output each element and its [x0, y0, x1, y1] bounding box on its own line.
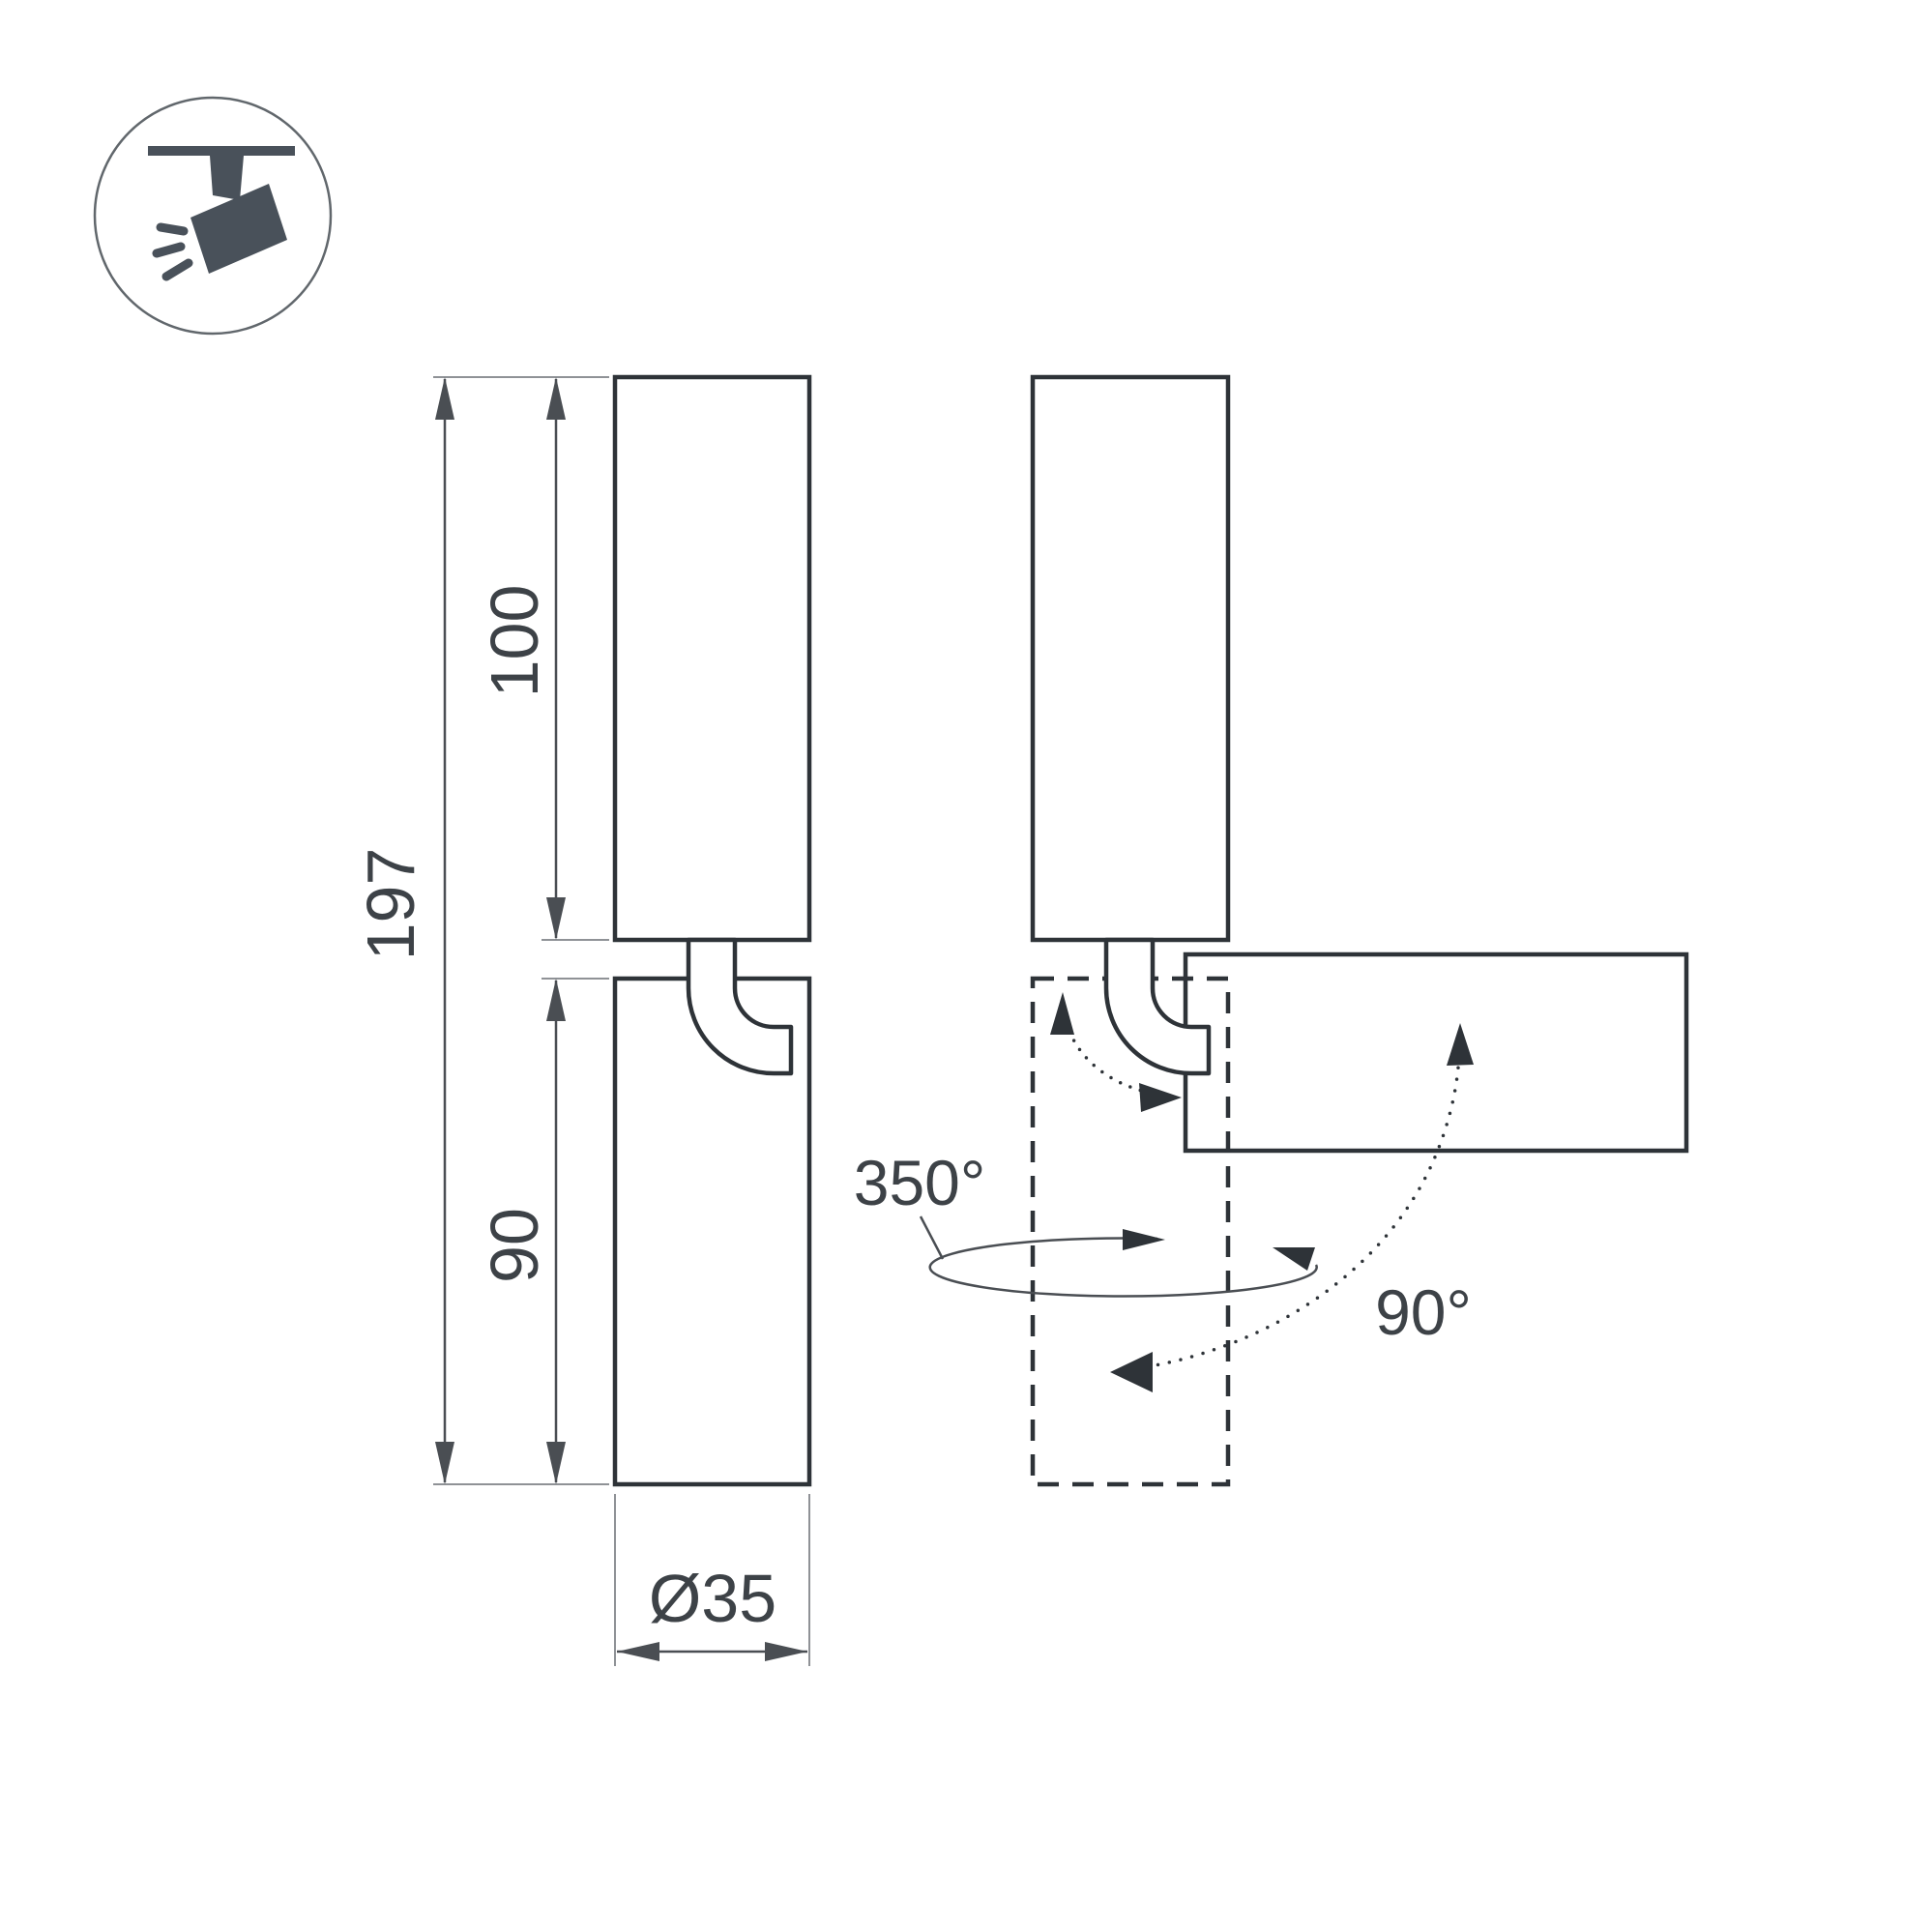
pan-arrow-down — [1273, 1247, 1315, 1271]
pan-rotation-ellipse — [921, 1216, 1317, 1297]
dim-label-d35: Ø35 — [649, 1561, 776, 1636]
dim-arrow-90-top — [546, 979, 566, 1021]
front-view: 197 100 90 Ø35 — [353, 377, 809, 1666]
dim-diameter: Ø35 — [617, 1561, 807, 1661]
rotated-head-arm — [1186, 954, 1686, 1151]
label-tilt-90: 90° — [1375, 1276, 1472, 1348]
dim-arrow-d35-right — [765, 1642, 807, 1661]
dim-label-90: 90 — [477, 1208, 552, 1283]
dim-upper-body-height: 100 — [477, 377, 566, 940]
dim-overall-height: 197 — [353, 377, 454, 1484]
tilt-arc-large-arrow-left — [1110, 1352, 1153, 1392]
dim-arrow-197-bottom — [435, 1442, 454, 1484]
dim-arrow-d35-left — [617, 1642, 659, 1661]
front-upper-body — [615, 377, 809, 940]
icon-stem — [210, 156, 244, 200]
pan-arrow-right — [1123, 1229, 1165, 1250]
dim-arrow-197-top — [435, 377, 454, 420]
dim-arrow-100-top — [546, 377, 566, 420]
dim-lower-body-height: 90 — [477, 979, 566, 1484]
dimension-drawing: 197 100 90 Ø35 — [0, 0, 1932, 1932]
dim-label-197: 197 — [353, 848, 428, 961]
dim-label-100: 100 — [477, 585, 552, 698]
icon-light-ray-1 — [161, 227, 184, 231]
label-pan-350: 350° — [854, 1147, 986, 1218]
dim-arrow-90-bottom — [546, 1442, 566, 1484]
tilt-arc-small-arrow-up — [1050, 992, 1074, 1035]
rotation-view: 350° 90° — [854, 377, 1686, 1484]
tilt-arc-small-arrow-right — [1139, 1083, 1182, 1112]
track-light-icon — [95, 98, 331, 334]
dim-arrow-100-bottom — [546, 897, 566, 940]
pan-label-leader — [921, 1216, 943, 1259]
icon-ceiling-bar — [148, 146, 295, 156]
rotation-upper-body — [1033, 377, 1228, 940]
